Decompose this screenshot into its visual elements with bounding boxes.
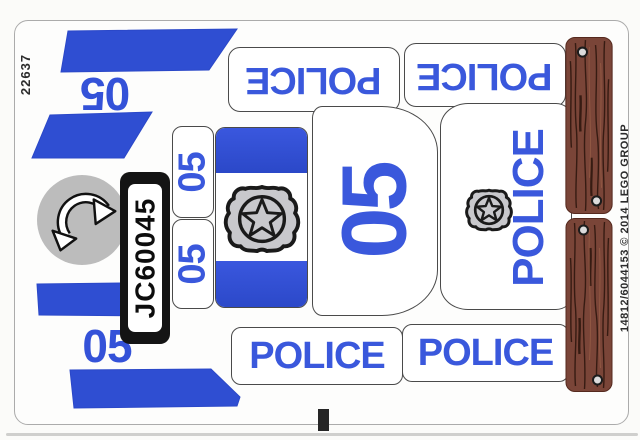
hood-number-sticker: 05 [312, 106, 438, 316]
set-code-text: 22637 [19, 53, 34, 94]
sticker-sheet: 22637 14812/6044153 © 2014 LEGO GROUP 05… [0, 0, 640, 440]
wood-grain [565, 218, 613, 392]
number-text: 05 [172, 152, 215, 192]
number-large-text: 05 [323, 164, 428, 258]
police-banner-top-1: POLICE [228, 47, 400, 112]
police-label: POLICE [246, 58, 381, 101]
blue-band-bottom [216, 261, 307, 308]
nail-icon [578, 48, 587, 57]
license-plate-text: JC60045 [129, 198, 161, 319]
police-banner-bottom-2: POLICE [402, 324, 569, 382]
license-plate-sticker: JC60045 [120, 172, 170, 344]
vertical-police-label-wrap: POLICE [507, 104, 551, 311]
police-label: POLICE [504, 129, 554, 287]
nail-icon [579, 226, 588, 235]
hood-police-sticker: POLICE [440, 103, 572, 310]
wood-plank-sticker-1 [565, 37, 613, 214]
wood-grain [565, 37, 613, 214]
police-label: POLICE [249, 335, 384, 378]
nail-icon [593, 376, 602, 385]
registration-mark [318, 409, 329, 431]
nail-icon [592, 196, 601, 205]
police-label: POLICE [418, 332, 553, 375]
stripe-shape [68, 367, 243, 411]
sheet-edge-shadow [6, 433, 638, 436]
police-badge-icon [222, 184, 302, 259]
number-sticker-top-left: 05 [75, 77, 137, 111]
part-code-text: 14812/6044153 © 2014 LEGO GROUP [619, 124, 631, 332]
number-text: 05 [172, 244, 215, 284]
rotation-arrow-icon [37, 175, 127, 265]
number-sticker-small-1: 05 [172, 126, 214, 218]
striped-badge-sticker [215, 127, 308, 308]
number-text: 05 [81, 67, 130, 121]
police-banner-top-2: POLICE [404, 43, 566, 107]
set-code: 22637 [14, 38, 38, 110]
blue-band-top [216, 128, 307, 173]
police-banner-bottom-1: POLICE [231, 327, 403, 385]
number-sticker-small-2: 05 [172, 219, 214, 309]
blue-stripe-sticker-4 [68, 367, 243, 411]
rotation-arrow-sticker [37, 175, 127, 265]
wood-plank-sticker-2 [565, 218, 613, 392]
license-plate-inner: JC60045 [128, 184, 162, 332]
part-code: 14812/6044153 © 2014 LEGO GROUP [612, 22, 638, 434]
police-label: POLICE [417, 54, 552, 97]
